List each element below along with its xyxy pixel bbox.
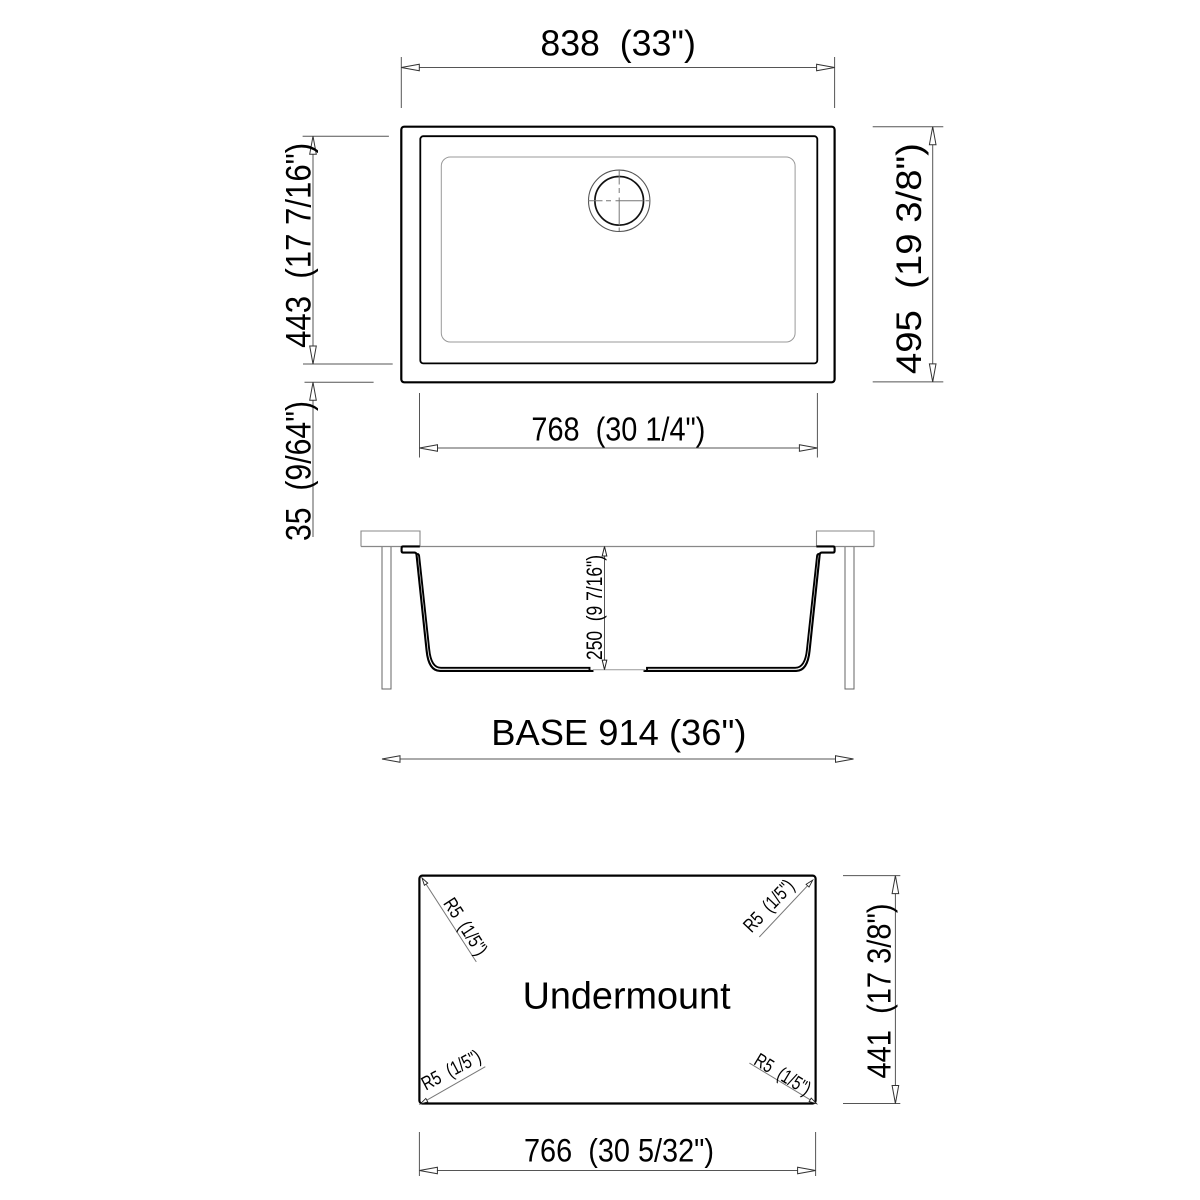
svg-text:250 (9 7/16"): 250 (9 7/16")	[582, 555, 607, 660]
svg-text:838 (33"): 838 (33")	[540, 22, 696, 63]
svg-text:BASE 914 (36"): BASE 914 (36")	[491, 712, 746, 753]
svg-text:443 (17 7/16"): 443 (17 7/16")	[279, 143, 318, 348]
svg-text:441 (17 3/8"): 441 (17 3/8")	[861, 904, 898, 1079]
svg-text:766 (30 5/32"): 766 (30 5/32")	[524, 1133, 714, 1169]
svg-text:495 (19 3/8"): 495 (19 3/8")	[890, 143, 929, 374]
svg-text:Undermount: Undermount	[523, 976, 731, 1018]
svg-text:35 (9/64"): 35 (9/64")	[279, 401, 318, 541]
svg-text:R5 (1/5"): R5 (1/5")	[739, 875, 799, 937]
svg-text:768 (30 1/4"): 768 (30 1/4")	[531, 411, 705, 448]
svg-text:R5 (1/5"): R5 (1/5")	[439, 894, 492, 960]
svg-text:R5 (1/5"): R5 (1/5")	[750, 1049, 814, 1100]
svg-text:R5 (1/5"): R5 (1/5")	[418, 1046, 485, 1095]
